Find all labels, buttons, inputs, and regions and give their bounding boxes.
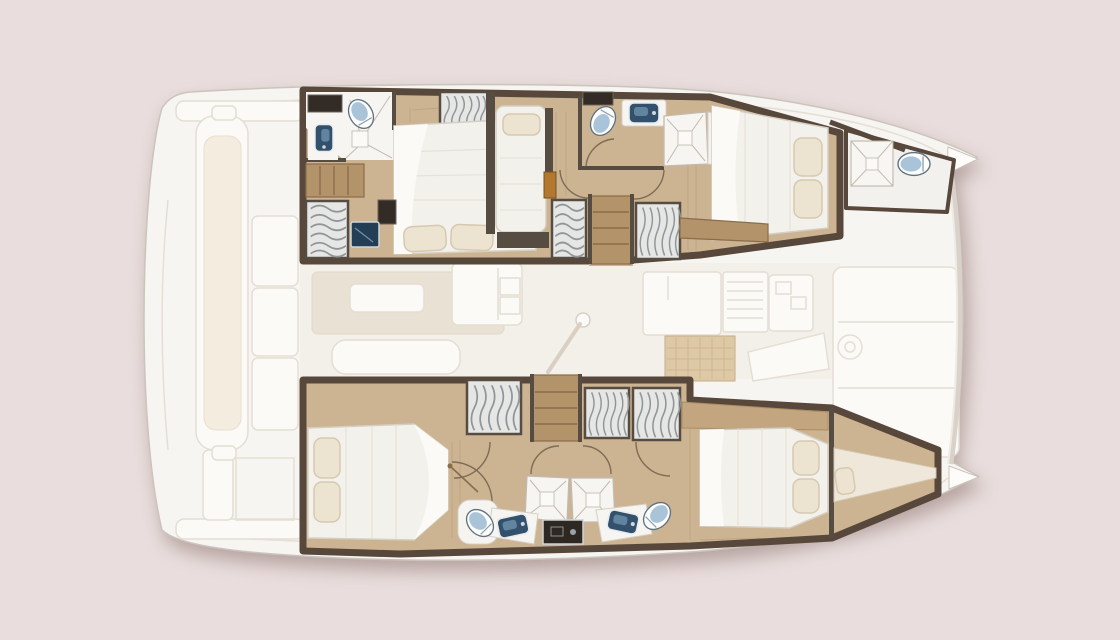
steps-rail-right: [630, 194, 634, 264]
catamaran-floor-plan: [0, 0, 1120, 640]
davit-bar-bottom: [176, 519, 304, 539]
counter-dark: [308, 95, 342, 112]
bed-sheet-fold: [700, 429, 724, 526]
cabin-door: [544, 172, 556, 198]
shower-drain: [352, 131, 368, 147]
pillow-1: [794, 138, 822, 176]
aft-stairs: [306, 164, 364, 197]
steps-rail-left: [530, 374, 534, 442]
bow-bulkhead: [829, 408, 834, 538]
saloon-sofa: [332, 340, 460, 374]
galley-counter: [643, 272, 721, 335]
fridge: [452, 263, 522, 325]
shower-drain: [678, 131, 692, 145]
steps-rail-left: [588, 194, 592, 264]
v-berth-pillow: [834, 467, 855, 495]
pillow-2: [793, 479, 819, 513]
pillow-2: [314, 482, 340, 522]
pillow-1: [793, 441, 819, 475]
bench-end-top: [212, 106, 236, 120]
floor-plan-canvas: [0, 0, 1120, 640]
sink: [315, 125, 333, 152]
berth-wall-left: [486, 92, 495, 234]
tv-locker: [351, 222, 379, 247]
davit-bar-top: [176, 101, 304, 121]
toilet: [898, 153, 930, 176]
counter-dark: [583, 92, 613, 105]
shower-2-drain: [586, 493, 600, 507]
berth-footboard: [497, 232, 549, 248]
transom-step-3: [252, 358, 298, 430]
transom-step-2: [252, 288, 298, 356]
cabinet-knob: [570, 529, 576, 535]
galley-louver-unit: [723, 272, 768, 332]
port-single-berth: [486, 92, 556, 248]
companionway-steps: [591, 196, 631, 264]
hatch-center: [866, 158, 878, 170]
saloon-table-top: [350, 284, 424, 312]
shower-1-drain: [540, 492, 554, 506]
pillow-2: [794, 180, 822, 218]
bench-end-bottom: [212, 446, 236, 460]
berth-pillow: [503, 114, 540, 135]
cockpit-bench-cushion: [204, 136, 241, 430]
door-hinge: [448, 464, 453, 469]
steps-rail-right: [578, 374, 582, 442]
starboard-aft-cabin: [308, 424, 448, 540]
pillow-1: [403, 225, 446, 252]
sink: [629, 103, 659, 123]
transom-step-1: [252, 216, 298, 286]
bedside-locker: [378, 200, 396, 224]
pillow-1: [314, 438, 340, 478]
